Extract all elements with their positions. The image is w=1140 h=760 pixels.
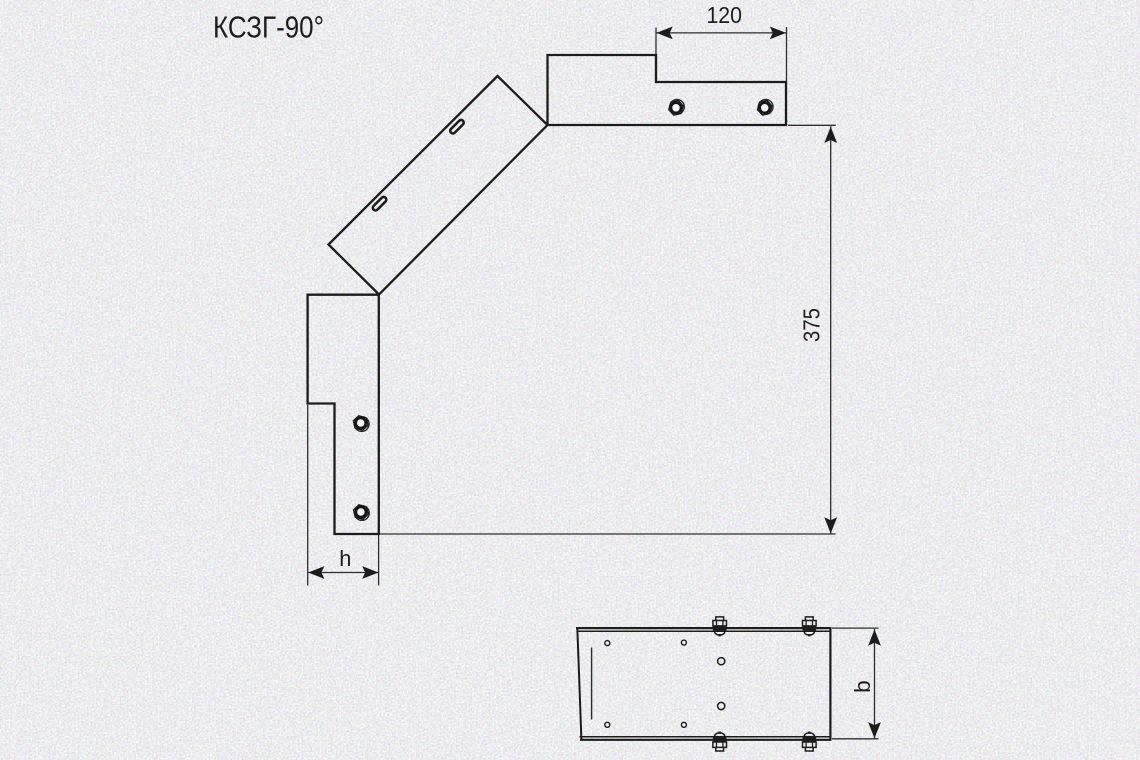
svg-text:120: 120 — [706, 2, 742, 28]
svg-text:b: b — [850, 680, 875, 693]
svg-text:КСЗГ-90°: КСЗГ-90° — [213, 11, 324, 45]
svg-text:375: 375 — [799, 308, 825, 342]
svg-text:h: h — [339, 546, 351, 571]
